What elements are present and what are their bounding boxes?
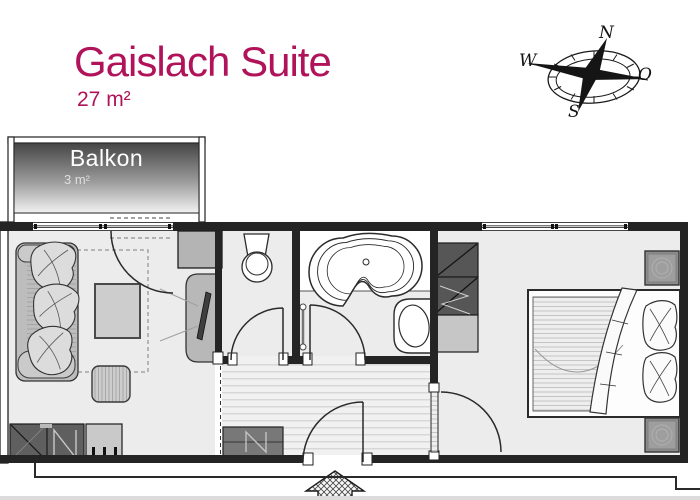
floor-plan-page: Gaislach Suite 27 m² Balkon 3 m² N W O S bbox=[0, 0, 700, 500]
compass-label-south: S bbox=[568, 102, 580, 122]
page-bottom-edge bbox=[0, 496, 700, 500]
toilet bbox=[242, 234, 272, 282]
sofa-pillow bbox=[31, 242, 76, 290]
compass-label-west: W bbox=[519, 51, 536, 71]
compass-rose-icon bbox=[527, 38, 648, 112]
drain-icon bbox=[363, 259, 369, 265]
balcony-label: Balkon bbox=[14, 145, 199, 172]
bed-pillow bbox=[643, 353, 677, 403]
nightstand-bottom bbox=[645, 418, 679, 452]
bed-pillow bbox=[643, 301, 677, 351]
entrance-arrow-icon bbox=[306, 471, 364, 497]
suite-area-label: 27 m² bbox=[77, 88, 131, 112]
living-room-window bbox=[33, 222, 173, 231]
compass-label-north: N bbox=[599, 23, 614, 43]
corridor-edge-line bbox=[35, 463, 700, 489]
page-title: Gaislach Suite bbox=[74, 38, 331, 86]
compass-label-east: O bbox=[638, 65, 652, 85]
double-bed bbox=[528, 288, 680, 417]
bedroom-door-leaf bbox=[431, 392, 438, 452]
balcony-area-label: 3 m² bbox=[64, 172, 90, 187]
stool bbox=[92, 366, 130, 402]
coffee-table bbox=[95, 284, 140, 338]
bedroom-wardrobe bbox=[431, 243, 478, 352]
hallway-wardrobe bbox=[223, 427, 283, 457]
nightstand-top bbox=[645, 251, 679, 285]
sofa bbox=[16, 242, 80, 381]
